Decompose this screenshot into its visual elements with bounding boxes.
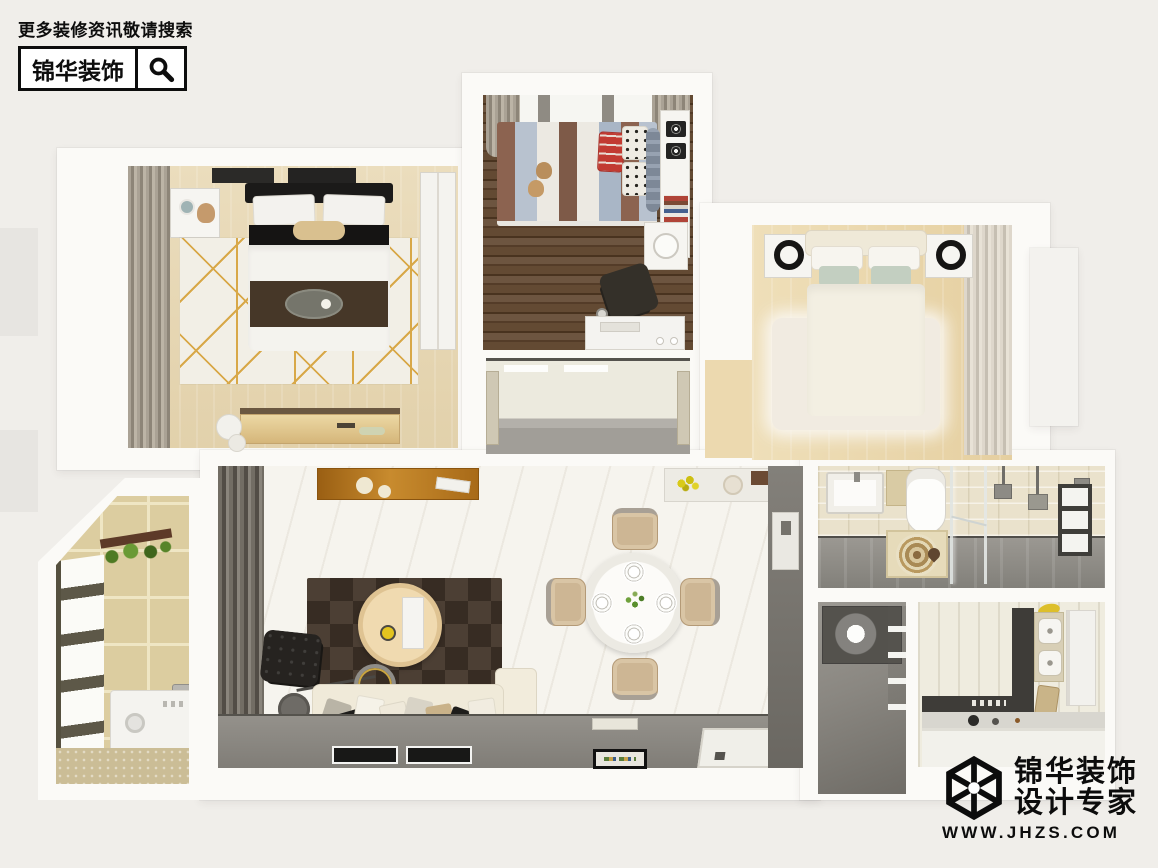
bed-sage-pillow (871, 266, 911, 286)
teddy-bear (528, 180, 544, 197)
bed-duvet (807, 284, 925, 416)
room-bedroom2-floor (752, 225, 1012, 460)
bathroom-window (1058, 484, 1092, 556)
console-bowl (356, 477, 373, 494)
room-hallway-floor (486, 358, 690, 454)
feature-wall (768, 466, 803, 768)
laptop (600, 322, 640, 332)
room-kidsroom-floor (483, 95, 693, 350)
bedroom2-bed (805, 230, 927, 418)
dresser-flowers (359, 427, 385, 435)
bed-sage-pillow (819, 266, 859, 286)
hall-trim-left (486, 371, 499, 445)
bedroom1-curtain (128, 166, 170, 448)
balcony-window (56, 555, 104, 774)
kitchen-sink-unit (1034, 612, 1064, 682)
fridge (1066, 610, 1096, 706)
dining-sideboard (664, 468, 776, 502)
speaker (666, 121, 686, 137)
shower-head (994, 484, 1012, 499)
lemon-bowl (380, 625, 396, 641)
bedroom1-fan-decor2 (228, 434, 246, 452)
kids-side-table (644, 222, 688, 270)
dining-chair-left (546, 578, 586, 626)
balcony-mosaic-floor (56, 748, 189, 784)
round-tray (723, 475, 743, 495)
room-living-floor (218, 466, 803, 768)
console-magazine (435, 477, 470, 494)
room-bathroom (818, 466, 1105, 588)
bedroom1-dresser (240, 414, 400, 444)
centerpiece-plant (622, 588, 648, 618)
utility-rail-window (888, 606, 906, 710)
magnifier-icon (146, 54, 176, 84)
desk-dots (656, 337, 664, 345)
tv-tray (406, 746, 472, 764)
room-kitchen (918, 602, 1105, 767)
bedroom2-lamp-left (774, 240, 804, 270)
place-setting (623, 623, 645, 645)
pan (968, 715, 979, 726)
room-bedroom1-floor (128, 166, 458, 448)
faucet (854, 472, 860, 482)
door-mat (592, 718, 638, 730)
promo-overlay: 更多装修资讯敬请搜索 锦华装饰 (18, 16, 193, 91)
washer-controls (163, 701, 187, 707)
watermark: 锦华装饰 设计专家 WWW.JHZS.COM (942, 756, 1138, 843)
kids-pillow-polka (622, 162, 648, 196)
watermark-text: 锦华装饰 设计专家 (1014, 757, 1138, 819)
round-basin (653, 233, 679, 259)
bed-accent-pillow (293, 221, 345, 240)
shower-head (1028, 494, 1048, 510)
washer-door (125, 713, 145, 733)
cube-logo-icon (942, 756, 1006, 820)
wall-block-bedroom2-bay (1030, 248, 1078, 426)
kitchen-counter-dark-right (1012, 608, 1034, 706)
dresser-handle (337, 423, 355, 428)
art-strokes (604, 757, 636, 761)
table-tray (402, 597, 424, 649)
living-console (317, 468, 479, 500)
kids-bolster (646, 128, 660, 212)
floorplan-promo-image: { "promo": { "search_hint": "更多装修资讯敬请搜索"… (0, 0, 1158, 868)
promo-search-hint: 更多装修资讯敬请搜索 (18, 16, 193, 41)
hall-trim-right (677, 371, 690, 445)
bedroom1-artwork-left (212, 168, 274, 183)
kids-desk (585, 316, 685, 350)
background-ledge-upper (0, 228, 38, 336)
room-utility (818, 602, 906, 794)
bedroom2-entry-floor (705, 360, 757, 458)
shower-glass-panel (950, 466, 953, 584)
yellow-flowers (673, 475, 701, 492)
tv-tray (332, 746, 398, 764)
watermark-tagline: 设计专家 (1014, 788, 1138, 819)
bedroom1-artwork-right (288, 168, 356, 183)
table-lamp (179, 199, 195, 215)
bedroom1-wardrobe (420, 172, 456, 350)
sink-basin (1038, 650, 1062, 676)
bed-breakfast-tray (285, 289, 343, 319)
window-panes (1062, 488, 1088, 552)
promo-icon-cell (135, 49, 184, 88)
armchair (259, 629, 322, 687)
place-setting (655, 592, 677, 614)
sink-basin (1038, 618, 1062, 644)
dining-chair-top (612, 508, 658, 550)
place-setting (591, 592, 613, 614)
watermark-url: WWW.JHZS.COM (942, 823, 1138, 843)
watermark-row: 锦华装饰 设计专家 (942, 756, 1138, 820)
bedroom1-nightstand (170, 188, 220, 238)
kids-pillow-polka (622, 126, 648, 160)
mandala-floor-tile (886, 530, 948, 578)
dining-chair-right (680, 578, 720, 626)
promo-brand-label: 锦华装饰 (21, 49, 135, 88)
flower-decor (321, 299, 331, 309)
teddy-bear (197, 203, 215, 223)
kitchen-lower-counter (922, 712, 1105, 728)
watermark-brand: 锦华装饰 (1014, 757, 1138, 788)
washing-machine (110, 690, 198, 752)
bedroom2-lamp-right (936, 240, 966, 270)
speaker (666, 143, 686, 159)
background-ledge-lower (0, 430, 38, 512)
toilet (906, 468, 946, 534)
place-setting (623, 561, 645, 583)
bathroom-sink (826, 472, 884, 514)
door-handle (714, 756, 725, 760)
hall-light-strip (504, 365, 548, 372)
niche-object (781, 521, 791, 535)
bedroom1-bed (245, 183, 393, 351)
dining-chair-bottom (612, 658, 658, 700)
framed-art (596, 752, 644, 766)
hob-knobs (972, 700, 1006, 706)
wall-niche-shelf (772, 512, 799, 570)
teddy-bear (536, 162, 552, 179)
coffee-table-round (358, 583, 442, 667)
promo-search-box: 锦华装饰 (18, 46, 187, 91)
kids-pillow-red (597, 131, 625, 172)
